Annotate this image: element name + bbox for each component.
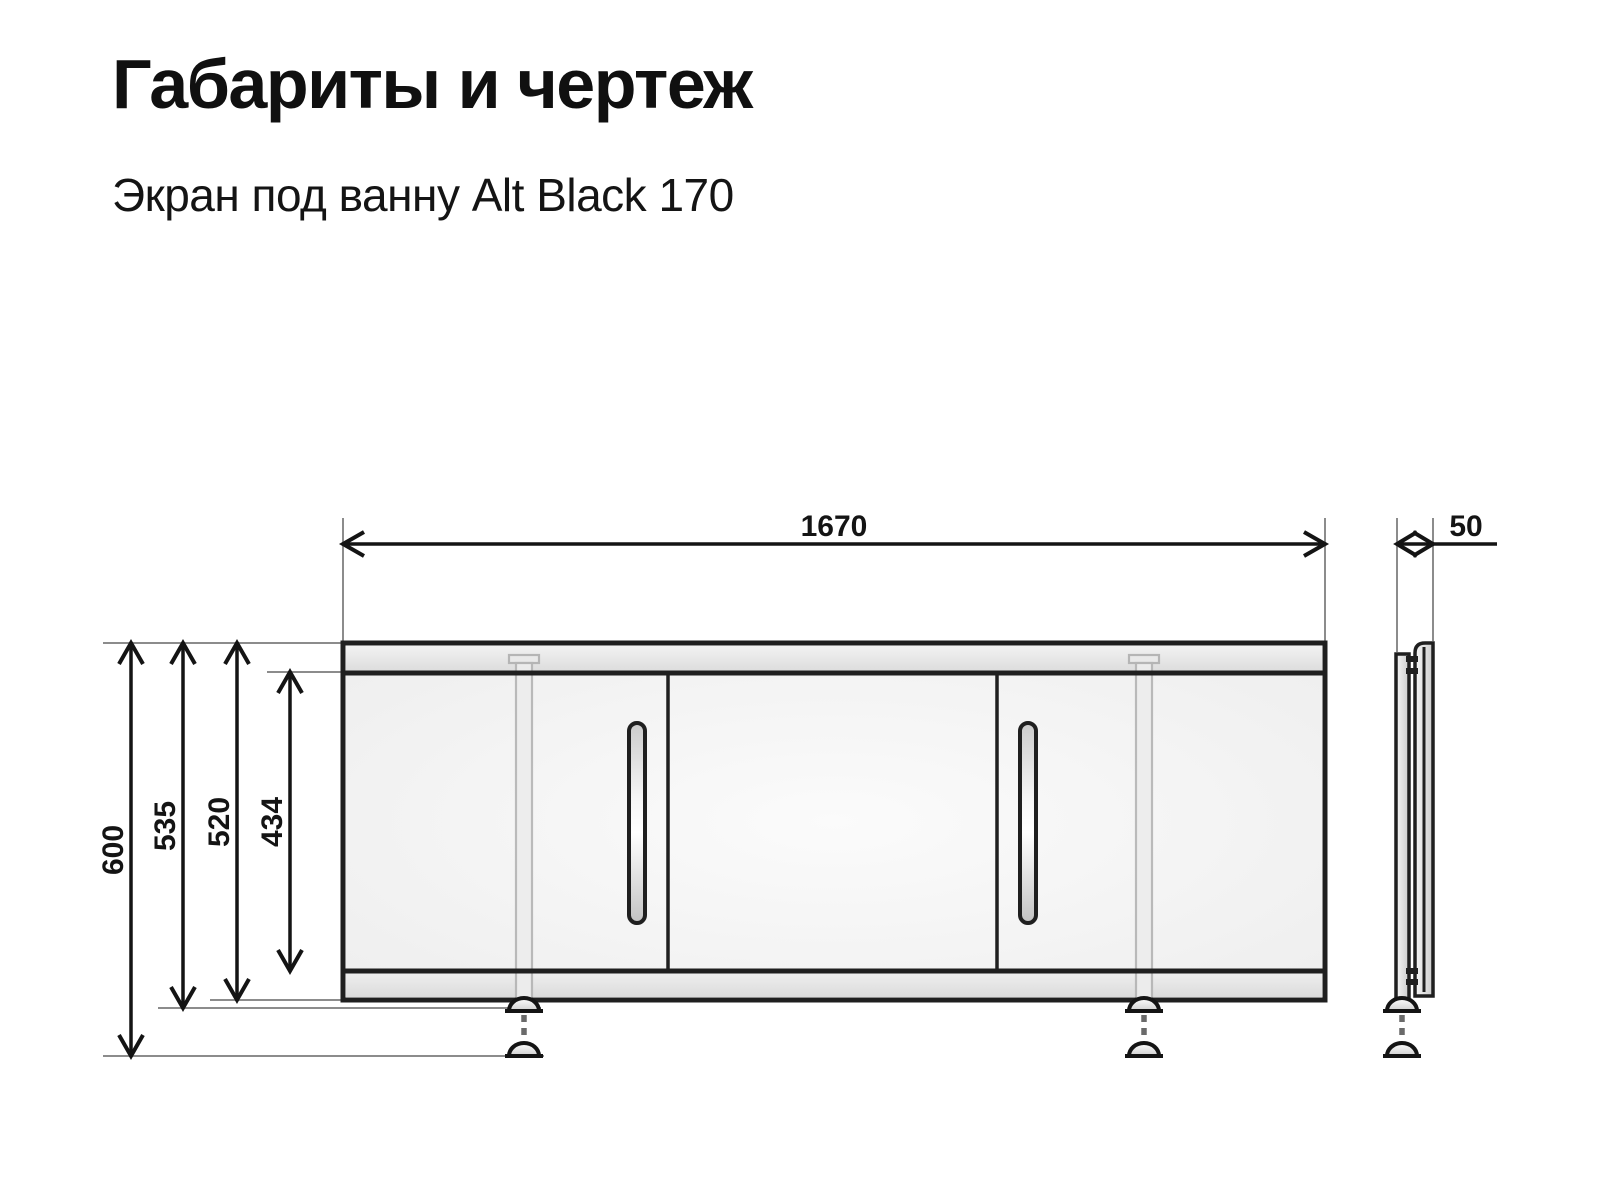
dim-width: 1670 — [343, 510, 1325, 556]
dim-depth-label: 50 — [1449, 510, 1482, 543]
left-door-handle — [629, 723, 645, 923]
right-door-handle — [1020, 723, 1036, 923]
dim-height-screen-body-label: 520 — [203, 797, 236, 847]
side-view — [1396, 643, 1433, 1000]
left-adjustable-foot-icon — [505, 998, 543, 1056]
technical-drawing: 1670 50 600 535 520 — [0, 0, 1600, 1200]
front-view — [343, 643, 1325, 1000]
dim-height-overall-label: 600 — [97, 825, 130, 875]
dim-width-label: 1670 — [801, 510, 868, 543]
top-rail — [346, 646, 1322, 673]
dim-depth: 50 — [1397, 510, 1497, 556]
dim-height-feet-retracted: 535 — [149, 643, 195, 1008]
dim-height-overall: 600 — [97, 643, 143, 1056]
door-area — [346, 646, 1322, 997]
side-panel-profile — [1396, 654, 1409, 1000]
right-adjustable-foot-icon — [1125, 998, 1163, 1056]
dim-door-height: 434 — [256, 672, 302, 971]
side-adjustable-foot-icon — [1383, 998, 1421, 1056]
dim-door-height-label: 434 — [256, 797, 289, 847]
dim-height-feet-retracted-label: 535 — [149, 801, 182, 851]
dim-height-screen-body: 520 — [203, 643, 249, 1000]
page: Габариты и чертеж Экран под ванну Alt Bl… — [0, 0, 1600, 1200]
